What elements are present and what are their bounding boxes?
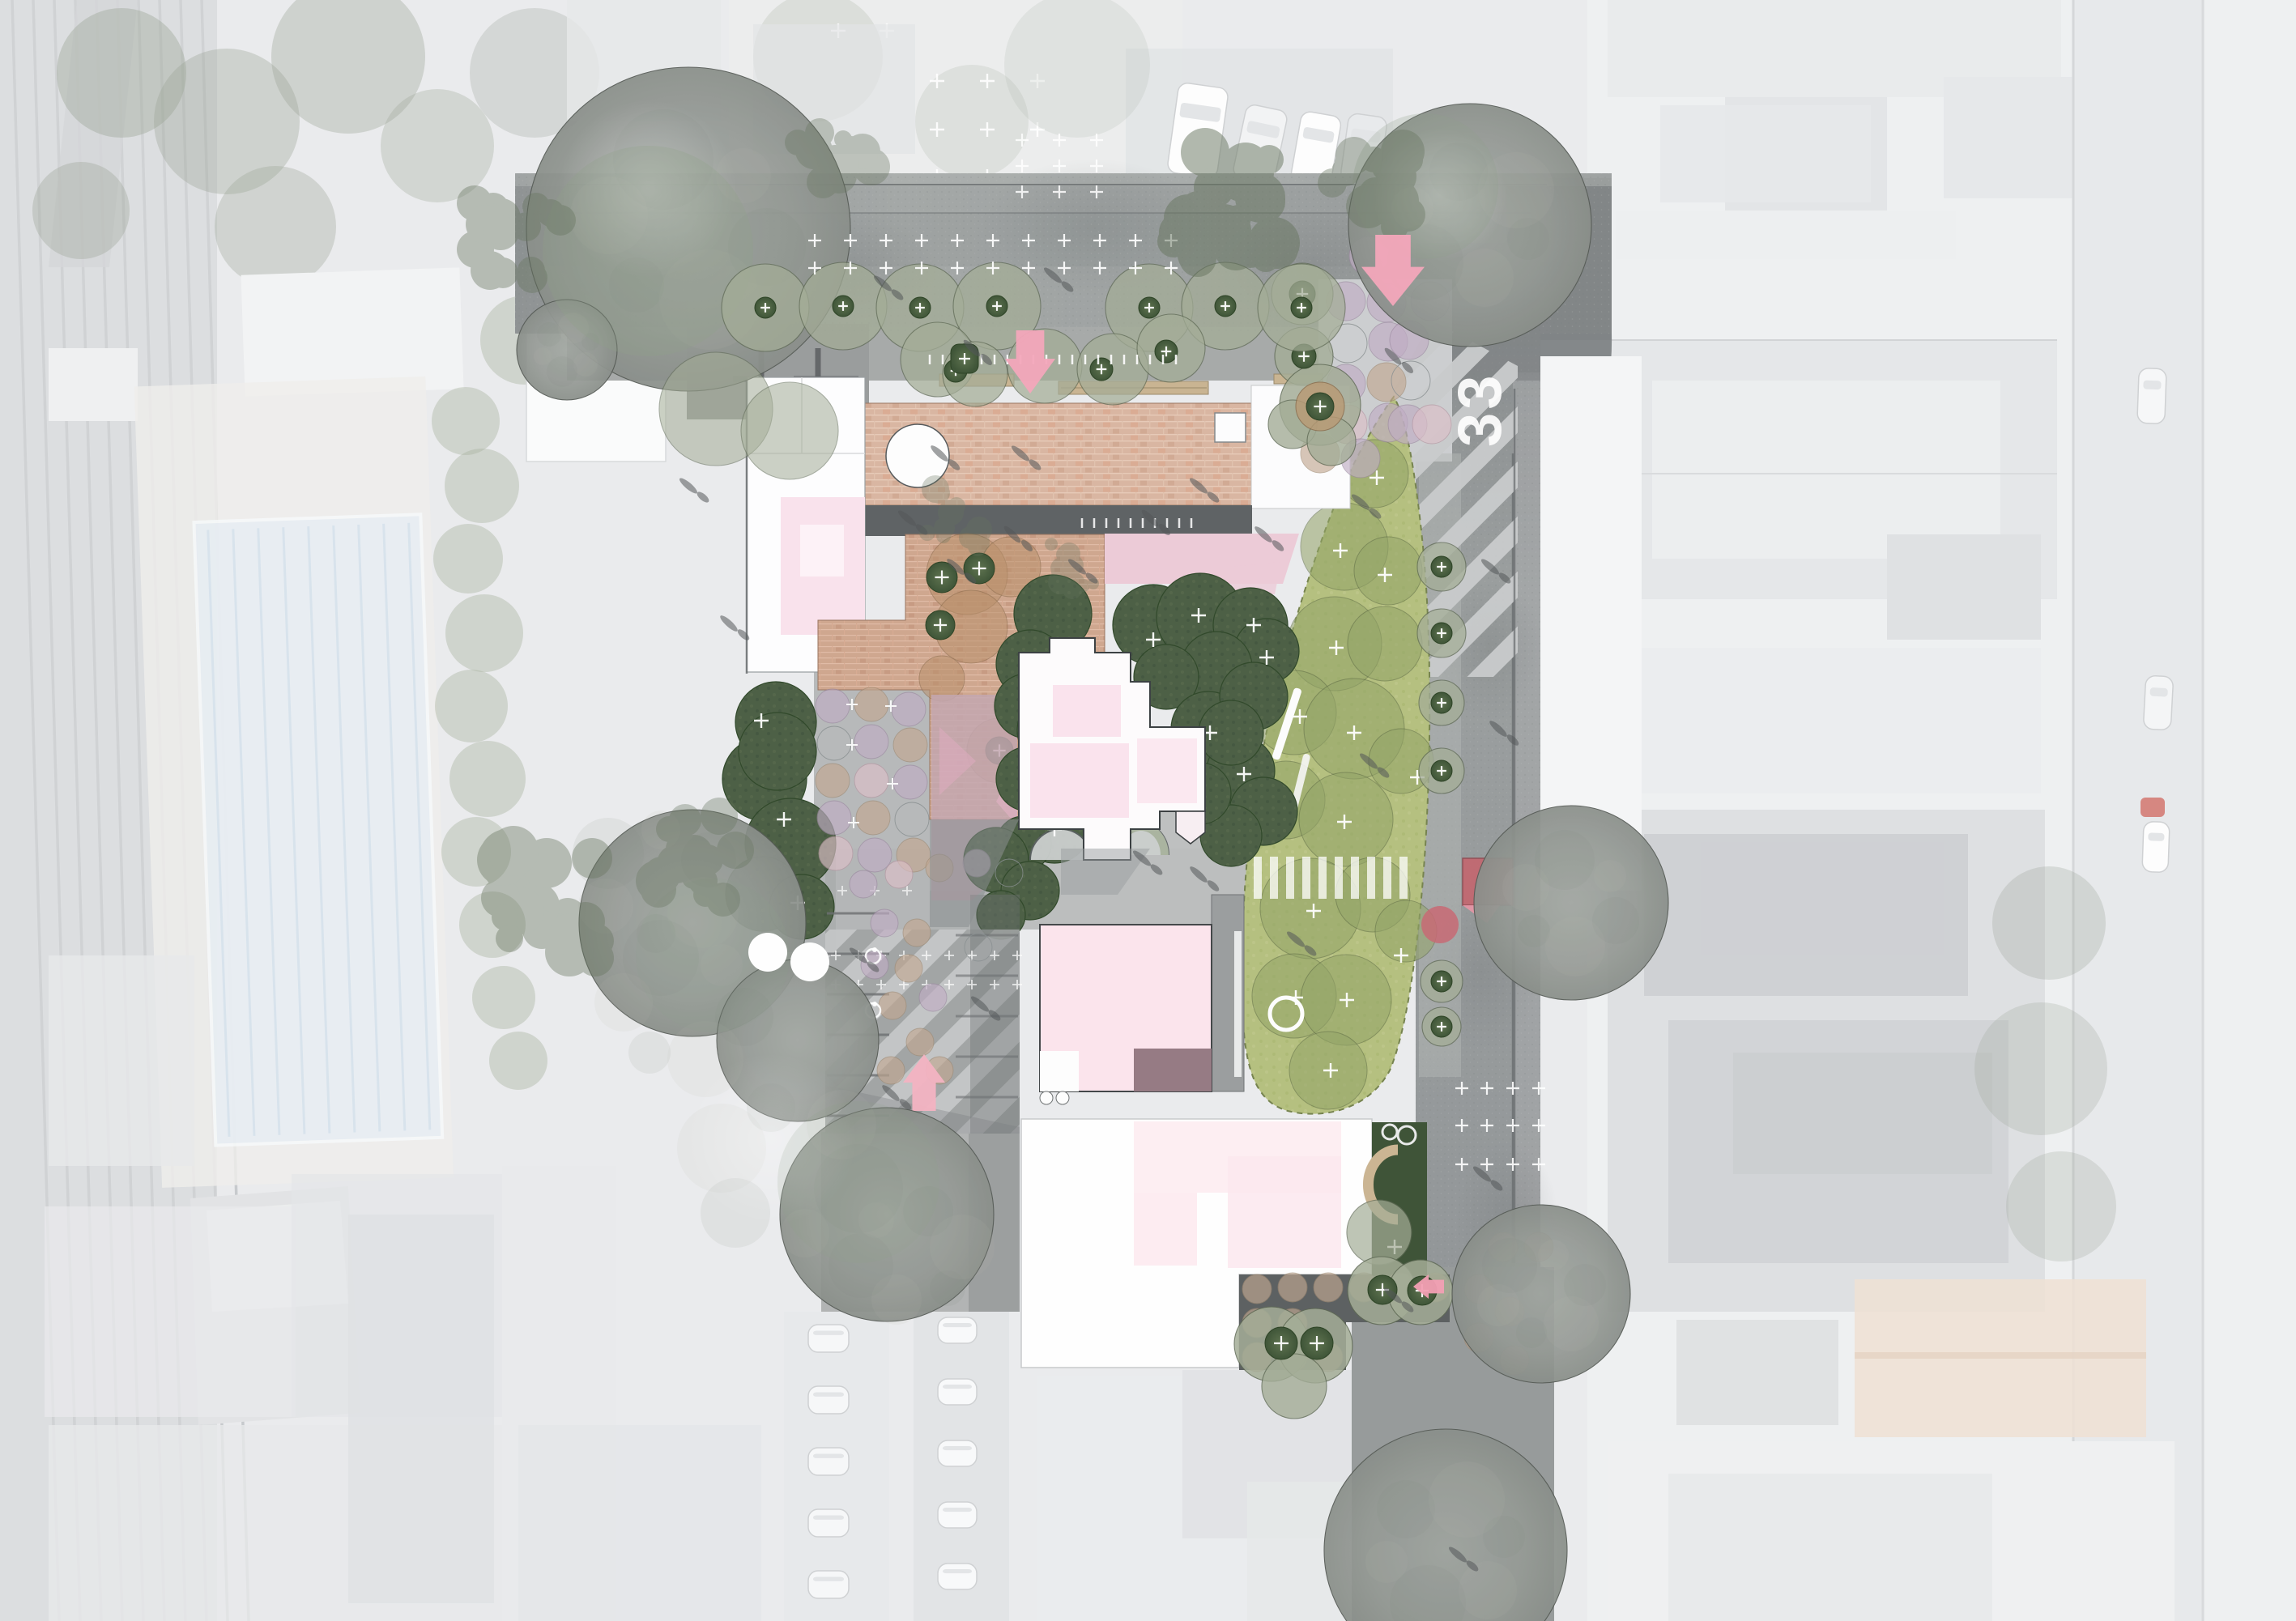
svg-text:33: 33 xyxy=(1446,372,1514,447)
